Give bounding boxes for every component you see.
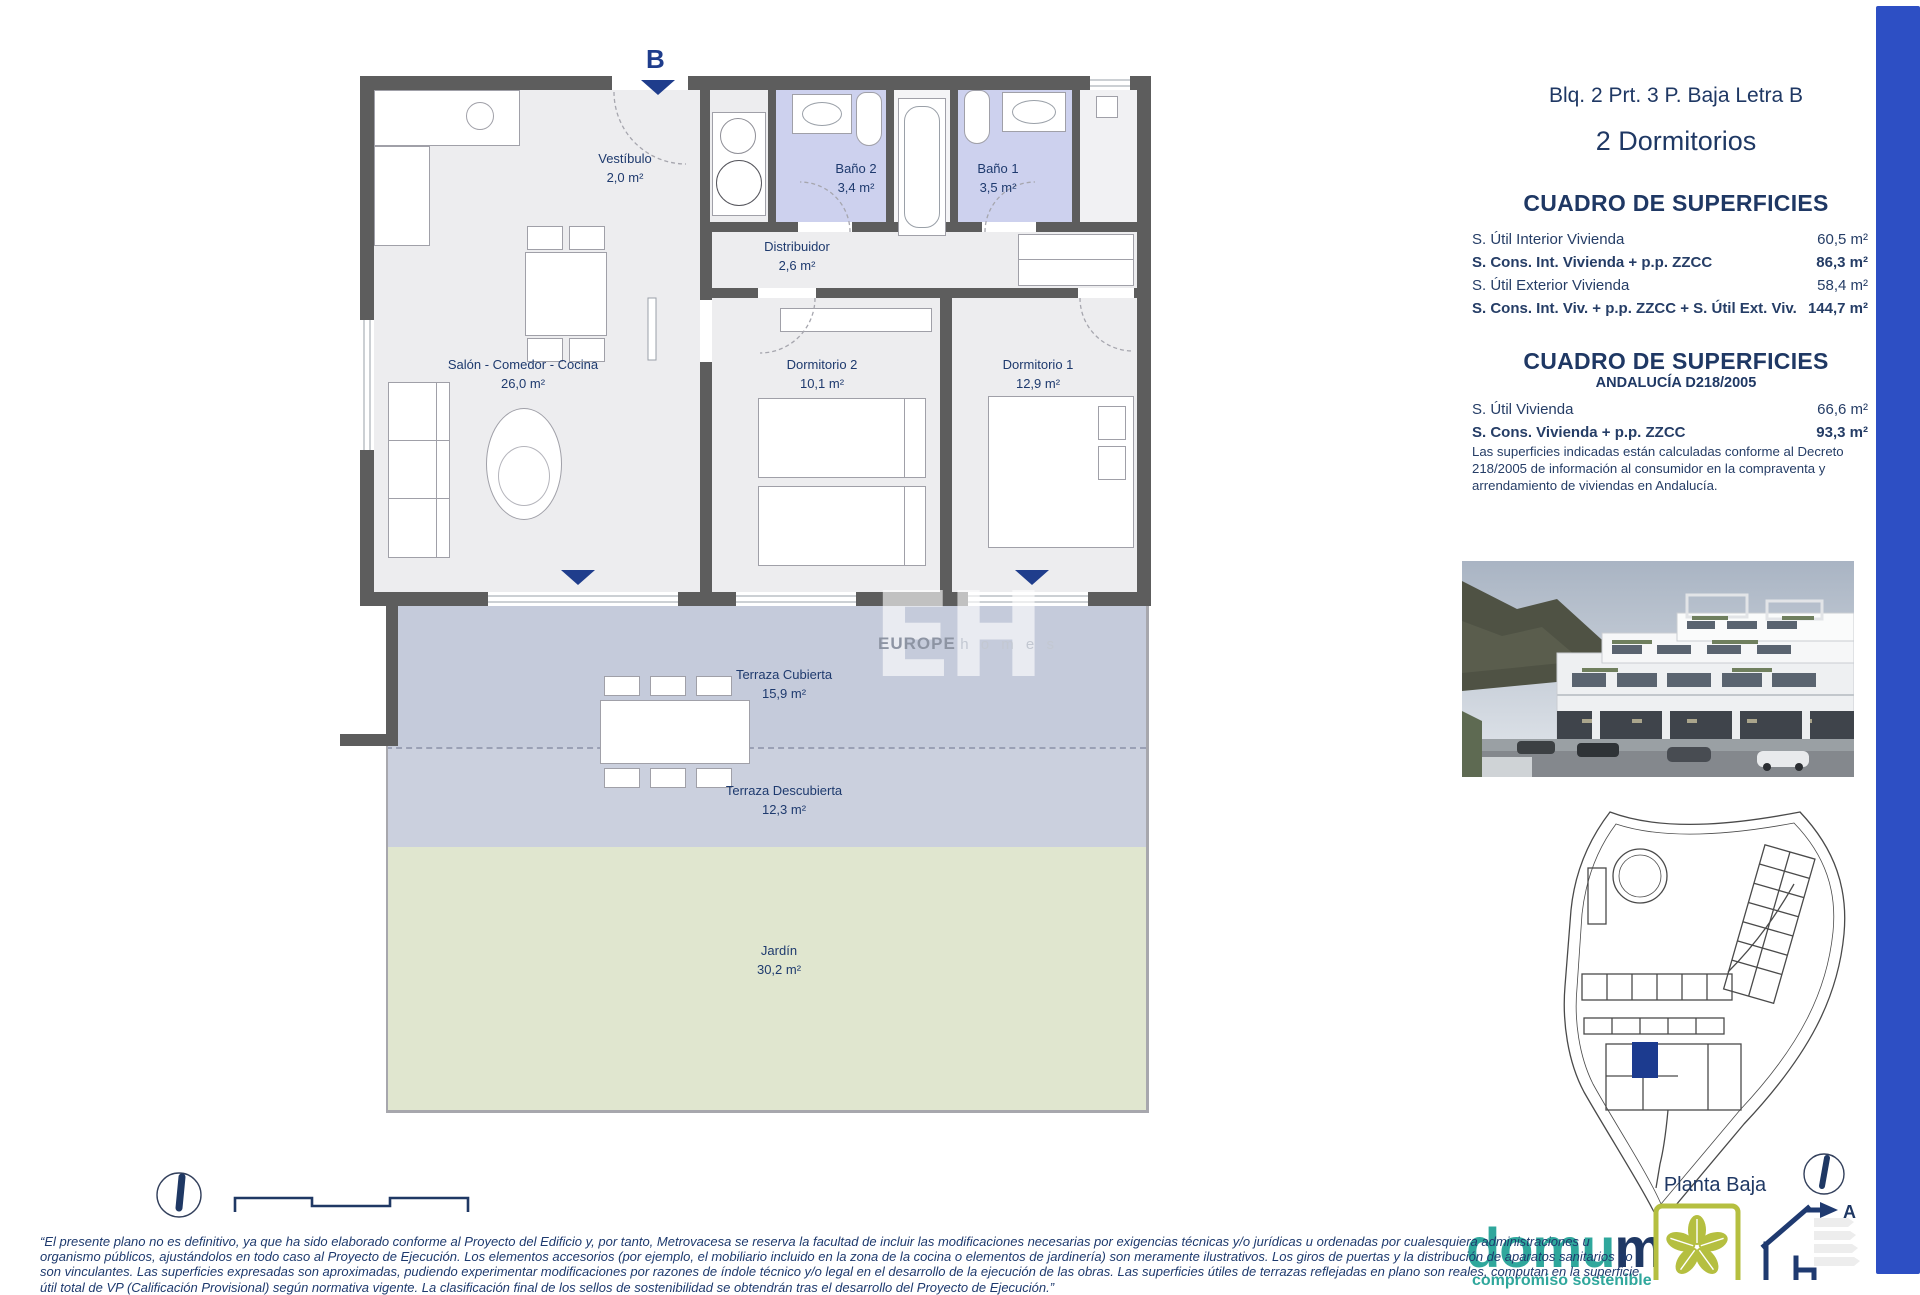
surfaces-andalucia-table: S. Útil Vivienda66,6 m² S. Cons. Viviend…: [1472, 398, 1868, 444]
terrace-chair: [650, 768, 686, 788]
living-exit-arrow-icon: [561, 570, 595, 585]
plot-border: [386, 746, 388, 1112]
terrace-chair: [650, 676, 686, 696]
scale-bar: [228, 1188, 478, 1218]
building-photo: [1462, 561, 1854, 777]
room-label-dormitorio2: Dormitorio 210,1 m²: [787, 356, 858, 394]
room-label-salon: Salón - Comedor - Cocina26,0 m²: [448, 356, 598, 394]
verde-logo: VERDE: [1653, 1203, 1743, 1280]
unit-subtitle: 2 Dormitorios: [1480, 126, 1872, 157]
table-row: S. Cons. Int. Viv. + p.p. ZZCC + S. Útil…: [1472, 297, 1868, 320]
table-row: S. Útil Exterior Vivienda58,4 m²: [1472, 274, 1868, 297]
room-label-bano1: Baño 13,5 m²: [977, 160, 1018, 198]
plan-openings-layer: [360, 76, 1160, 616]
room-label-vestibulo: Vestíbulo2,0 m²: [598, 150, 652, 188]
disclaimer: “El presente plano no es definitivo, ya …: [40, 1234, 1639, 1295]
plot-border: [1146, 606, 1149, 1112]
surfaces-table-title: CUADRO DE SUPERFICIES: [1480, 190, 1872, 217]
unit-location-marker: [1632, 1042, 1658, 1078]
unit-title: Blq. 2 Prt. 3 P. Baja Letra B: [1480, 84, 1872, 108]
accent-bar: [1876, 6, 1920, 1274]
terrace-table: [600, 700, 750, 764]
surfaces-andalucia-subtitle: ANDALUCÍA D218/2005: [1480, 375, 1872, 391]
room-label-jardin: Jardín30,2 m²: [757, 942, 801, 980]
energy-rating-icon: A: [1756, 1200, 1866, 1280]
room-label-terraza-cubierta: Terraza Cubierta15,9 m²: [736, 666, 832, 704]
table-row: S. Útil Vivienda66,6 m²: [1472, 398, 1868, 421]
surfaces-note: Las superficies indicadas están calculad…: [1472, 444, 1868, 495]
bedroom1-exit-arrow-icon: [1015, 570, 1049, 585]
surfaces-table: S. Útil Interior Vivienda60,5 m² S. Cons…: [1472, 228, 1868, 320]
table-row: S. Útil Interior Vivienda60,5 m²: [1472, 228, 1868, 251]
table-row: S. Cons. Vivienda + p.p. ZZCC93,3 m²: [1472, 421, 1868, 444]
terrace-wall: [386, 606, 398, 746]
room-label-bano2: Baño 23,4 m²: [835, 160, 876, 198]
terrace-chair: [696, 676, 732, 696]
table-row: S. Cons. Int. Vivienda + p.p. ZZCC86,3 m…: [1472, 251, 1868, 274]
entry-arrow-icon: [641, 80, 675, 95]
room-label-distribuidor: Distribuidor2,6 m²: [764, 238, 830, 276]
terrace-wall: [340, 734, 398, 746]
room-label-dormitorio1: Dormitorio 112,9 m²: [1003, 356, 1074, 394]
entry-label: B: [646, 44, 665, 75]
floor-plan: B EH EUROPE h o m e s Vestíbulo2,0 m² Ba…: [0, 0, 1180, 1180]
plot-border: [386, 1110, 1149, 1113]
room-label-terraza-descubierta: Terraza Descubierta12,3 m²: [726, 782, 842, 820]
energy-rating-letter: A: [1843, 1202, 1856, 1222]
surfaces-andalucia-title: CUADRO DE SUPERFICIES: [1480, 348, 1872, 375]
compass-icon: [1800, 1150, 1848, 1198]
floor-label: Planta Baja: [1630, 1174, 1800, 1197]
terrace-chair: [604, 768, 640, 788]
compass-icon: [152, 1168, 206, 1222]
terrace-chair: [604, 676, 640, 696]
